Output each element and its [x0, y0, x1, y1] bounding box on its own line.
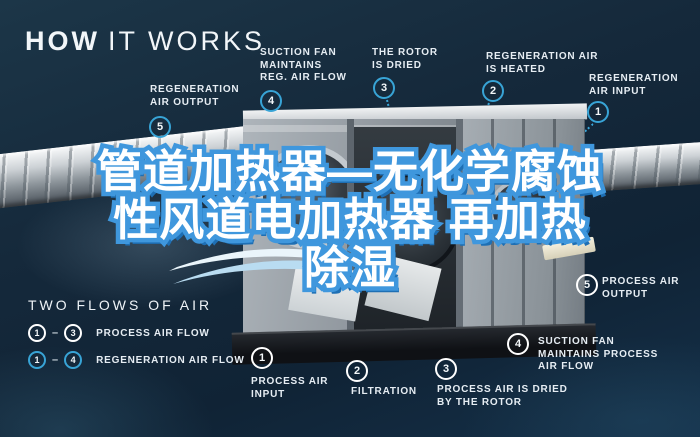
callout-number-regen-3: 3 — [373, 77, 395, 99]
callout-number-regen-5: 5 — [149, 116, 171, 138]
callout-number-process-5: 5 — [576, 274, 598, 296]
callout-label-process-input: PROCESS AIR INPUT — [251, 376, 328, 401]
legend-separator: – — [52, 327, 58, 339]
callout-number-regen-2: 2 — [482, 80, 504, 102]
callout-number-process-1: 1 — [251, 347, 273, 369]
callout-label-suction-fan-reg: SUCTION FAN MAINTAINS REG. AIR FLOW — [260, 47, 347, 85]
callout-label-regeneration-heated: REGENERATION AIR IS HEATED — [486, 51, 598, 76]
headline-line-1: 管道加热器—无化学腐蚀 — [0, 148, 700, 196]
callout-number-process-3: 3 — [435, 358, 457, 380]
page-title: HOWIT WORKS — [25, 26, 265, 57]
legend-circle-from: 1 — [28, 351, 46, 369]
legend-circle-to: 3 — [64, 324, 82, 342]
headline-overlay: 管道加热器—无化学腐蚀 性风道电加热器 再加热 除湿 — [0, 148, 700, 292]
callout-number-regen-1: 1 — [587, 101, 609, 123]
legend-row-regeneration: 1 – 4 REGENERATION AIR FLOW — [28, 351, 245, 369]
callout-number-regen-4: 4 — [260, 90, 282, 112]
legend-separator: – — [52, 354, 58, 366]
legend-circle-to: 4 — [64, 351, 82, 369]
legend-circle-from: 1 — [28, 324, 46, 342]
legend-label-process: PROCESS AIR FLOW — [96, 328, 210, 339]
callout-number-process-2: 2 — [346, 360, 368, 382]
infographic-canvas: 管道加热器—无化学腐蚀 性风道电加热器 再加热 除湿 HOWIT WORKS R… — [0, 0, 700, 437]
callout-label-process-output: PROCESS AIR OUTPUT — [602, 276, 679, 301]
headline-line-2: 性风道电加热器 再加热 — [0, 196, 700, 244]
callout-label-process-dried: PROCESS AIR IS DRIED BY THE ROTOR — [437, 384, 568, 409]
legend-row-process: 1 – 3 PROCESS AIR FLOW — [28, 324, 210, 342]
callout-label-regeneration-air-output: REGENERATION AIR OUTPUT — [150, 84, 239, 109]
callout-label-rotor-dried: THE ROTOR IS DRIED — [372, 47, 438, 72]
legend-title: TWO FLOWS OF AIR — [28, 297, 212, 313]
callout-label-filtration: FILTRATION — [351, 386, 417, 399]
page-title-bold: HOW — [25, 26, 100, 56]
callout-label-regeneration-input: REGENERATION AIR INPUT — [589, 73, 678, 98]
legend-label-regeneration: REGENERATION AIR FLOW — [96, 355, 244, 366]
callout-label-suction-fan-process: SUCTION FAN MAINTAINS PROCESS AIR FLOW — [538, 336, 658, 374]
callout-number-process-4: 4 — [507, 333, 529, 355]
page-title-rest: IT WORKS — [108, 26, 265, 56]
